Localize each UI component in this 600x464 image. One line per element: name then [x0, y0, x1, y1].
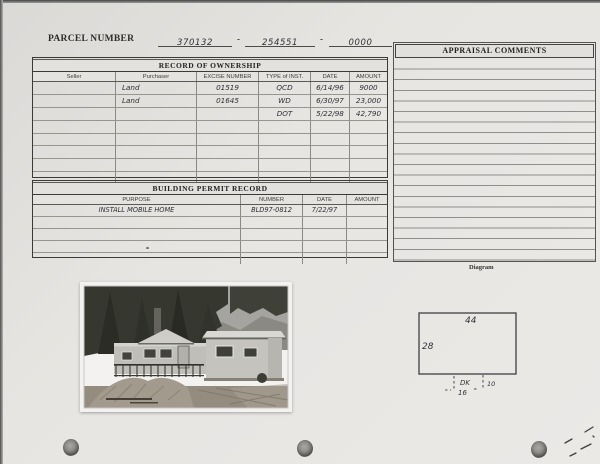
deck-depth-label: 10: [487, 380, 495, 388]
deck-width-label: 16: [458, 389, 467, 397]
table-cell: [33, 217, 241, 228]
table-cell: INSTALL MOBILE HOME: [33, 205, 241, 216]
parcel-number-label: PARCEL NUMBER: [48, 34, 134, 44]
table-cell: [347, 253, 387, 264]
table-cell: [116, 146, 197, 158]
table-cell: [259, 134, 311, 146]
table-cell: [241, 253, 303, 264]
appraisal-comments-panel: APPRAISAL COMMENTS: [393, 42, 596, 262]
table-row: [33, 121, 387, 134]
table-row: [33, 217, 387, 229]
table-cell: [259, 146, 311, 158]
footprint-diagram: 44 28 DK 16 10: [405, 302, 595, 402]
ink-dot: [146, 247, 149, 249]
parcel-separator-1: -: [237, 34, 240, 44]
table-cell: 42,790: [350, 108, 387, 120]
hole-punch: [63, 439, 79, 456]
table-cell: [311, 121, 350, 133]
header-cell-permit-date: DATE: [303, 195, 347, 204]
gable-shadow: [138, 343, 194, 345]
table-cell: [303, 217, 347, 228]
table-cell: BLD97-0812: [241, 205, 303, 216]
table-row: Land01645WD6/30/9723,000: [33, 95, 387, 108]
header-cell-excise-number: EXCISE NUMBER: [197, 72, 259, 81]
table-cell: Land: [116, 95, 197, 107]
table-cell: [33, 95, 116, 107]
table-cell: [350, 121, 387, 133]
hole-punch: [297, 440, 313, 457]
window: [216, 346, 233, 357]
end-wall: [268, 338, 282, 380]
header-cell-permit-amount: AMOUNT: [347, 195, 387, 204]
table-cell: [33, 146, 116, 158]
table-cell: [33, 82, 116, 94]
table-cell: [259, 121, 311, 133]
table-cell: [33, 134, 116, 146]
plank: [106, 398, 152, 400]
table-cell: Land: [116, 82, 197, 94]
scan-edge-left: [0, 0, 3, 464]
window: [244, 348, 257, 357]
table-cell: DOT: [259, 108, 311, 120]
parcel-number-value-3: 0000: [348, 38, 372, 48]
permit-header-row: PURPOSE NUMBER DATE AMOUNT: [33, 195, 387, 205]
table-cell: 6/14/96: [311, 82, 350, 94]
appraisal-comments-lines: [394, 59, 595, 261]
table-cell: [241, 229, 303, 240]
table-cell: [350, 159, 387, 171]
table-cell: 9000: [350, 82, 387, 94]
table-cell: [33, 159, 116, 171]
table-cell: [116, 108, 197, 120]
diagram-depth-label: 28: [422, 342, 434, 352]
plank: [130, 402, 158, 404]
parcel-number-field-2: 254551: [245, 32, 315, 47]
table-cell: [303, 253, 347, 264]
table-cell: [350, 134, 387, 146]
deck-label: DK: [460, 379, 471, 387]
pen-scratches: [548, 424, 598, 462]
table-cell: 01645: [197, 95, 259, 107]
header-cell-number: NUMBER: [241, 195, 303, 204]
table-cell: [347, 241, 387, 252]
roof-right: [202, 331, 286, 338]
table-cell: [311, 146, 350, 158]
table-cell: [116, 159, 197, 171]
table-cell: [241, 241, 303, 252]
table-row: Land01519QCD6/14/969000: [33, 82, 387, 95]
scan-edge-top: [0, 0, 600, 3]
table-cell: [197, 159, 259, 171]
table-cell: [33, 241, 241, 252]
house-skirt-shadow: [204, 378, 284, 381]
table-cell: [347, 205, 387, 216]
parcel-number-field-1: 370132: [158, 32, 232, 47]
window: [160, 349, 172, 358]
table-cell: [197, 121, 259, 133]
table-cell: [33, 229, 241, 240]
property-photo: [80, 282, 292, 412]
table-cell: 23,000: [350, 95, 387, 107]
ownership-table-title: RECORD OF OWNERSHIP: [33, 59, 387, 72]
table-row: INSTALL MOBILE HOMEBLD97-08127/22/97: [33, 205, 387, 217]
table-row: [33, 241, 387, 253]
header-cell-type-of-inst: TYPE of INST.: [259, 72, 311, 81]
table-cell: WD: [259, 95, 311, 107]
table-cell: [350, 146, 387, 158]
table-row: [33, 146, 387, 159]
diagram-width-label: 44: [465, 316, 477, 326]
parcel-number-value-2: 254551: [262, 38, 298, 48]
parcel-separator-2: -: [320, 34, 323, 44]
header-cell-amount: AMOUNT: [350, 72, 387, 81]
table-row: [33, 229, 387, 241]
table-cell: [197, 134, 259, 146]
table-cell: [33, 108, 116, 120]
window: [122, 352, 132, 360]
photo-image: [84, 286, 288, 408]
building-permit-table: BUILDING PERMIT RECORD PURPOSE NUMBER DA…: [32, 180, 388, 258]
table-cell: [197, 108, 259, 120]
table-cell: [33, 253, 241, 264]
appraisal-comments-title: APPRAISAL COMMENTS: [395, 44, 594, 58]
header-cell-purchaser: Purchaser: [116, 72, 197, 81]
table-cell: [197, 146, 259, 158]
table-cell: [241, 217, 303, 228]
table-cell: [311, 134, 350, 146]
table-cell: [347, 217, 387, 228]
table-cell: [259, 159, 311, 171]
header-cell-date: DATE: [311, 72, 350, 81]
diagram-label: Diagram: [469, 264, 494, 271]
window: [144, 349, 156, 358]
table-row: DOT5/22/9842,790: [33, 108, 387, 121]
building-permit-table-title: BUILDING PERMIT RECORD: [33, 182, 387, 195]
table-row: [33, 253, 387, 264]
ownership-header-row: Seller Purchaser EXCISE NUMBER TYPE of I…: [33, 72, 387, 82]
scanned-parcel-record-page: PARCEL NUMBER 370132 - 254551 - 0000 REC…: [0, 0, 600, 464]
table-cell: [116, 121, 197, 133]
sky-gap: [154, 308, 161, 334]
ownership-table: RECORD OF OWNERSHIP Seller Purchaser EXC…: [32, 57, 388, 178]
header-cell-seller: Seller: [33, 72, 116, 81]
permit-table-body: INSTALL MOBILE HOMEBLD97-08127/22/97: [33, 205, 387, 264]
table-row: [33, 134, 387, 147]
table-cell: 7/22/97: [303, 205, 347, 216]
table-cell: [116, 134, 197, 146]
parcel-number-value-1: 370132: [177, 38, 213, 48]
table-cell: [347, 229, 387, 240]
table-cell: 01519: [197, 82, 259, 94]
table-cell: QCD: [259, 82, 311, 94]
table-cell: [311, 159, 350, 171]
table-cell: 6/30/97: [311, 95, 350, 107]
table-cell: 5/22/98: [311, 108, 350, 120]
table-row: [33, 159, 387, 172]
hole-punch: [531, 441, 547, 458]
table-cell: [303, 241, 347, 252]
ownership-table-body: Land01519QCD6/14/969000Land01645WD6/30/9…: [33, 82, 387, 184]
header-cell-purpose: PURPOSE: [33, 195, 241, 204]
shrub: [257, 373, 267, 383]
parcel-number-field-3: 0000: [329, 32, 392, 47]
table-cell: [33, 121, 116, 133]
table-cell: [303, 229, 347, 240]
